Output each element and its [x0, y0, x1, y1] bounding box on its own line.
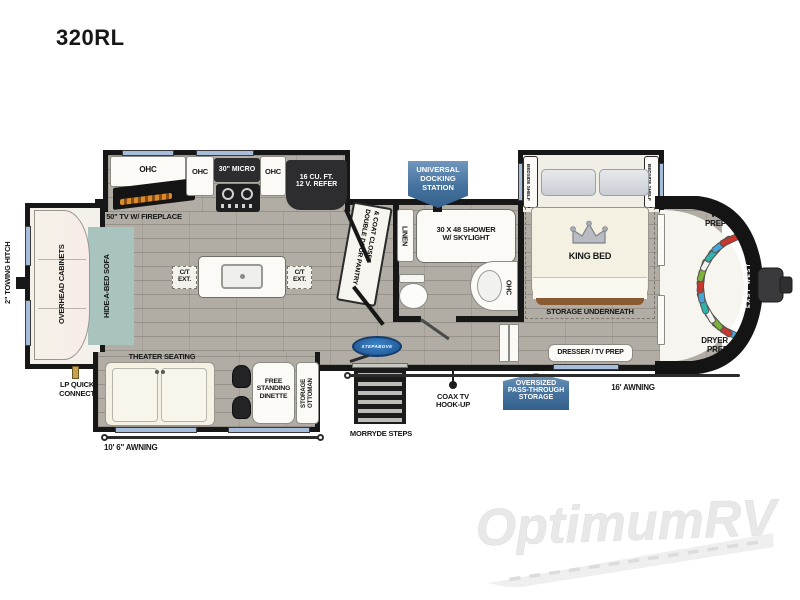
- theater-seat-left: [112, 368, 158, 422]
- crown-icon: [568, 220, 610, 248]
- island-faucet: [240, 274, 245, 279]
- bath-ohc-label: OHC: [504, 274, 512, 300]
- dinette-chair-1: [232, 365, 251, 388]
- dinette-line3: DINETTE: [252, 393, 295, 400]
- awning-left-cap-r: [317, 434, 324, 441]
- bed-foot-blanket: [533, 277, 647, 299]
- awning-right-bar: [348, 374, 740, 377]
- cupholder-1: [155, 370, 159, 374]
- ct-ext-left-label: C/T EXT.: [172, 269, 197, 283]
- pillow-left: [541, 169, 596, 196]
- passthrough-line-1: OVERSIZED: [503, 380, 569, 387]
- dinette-label: FREE STANDING DINETTE: [252, 378, 295, 400]
- dinette-line1: FREE: [252, 378, 295, 385]
- burner-2: [241, 188, 253, 200]
- storage-underneath-label: STORAGE UNDERNEATH: [523, 308, 657, 316]
- ottoman-line2: OTTOMAN: [308, 366, 315, 420]
- shower-label-2: W/ SKYLIGHT: [416, 234, 516, 242]
- microwave: 30" MICRO: [214, 158, 260, 182]
- shower-label: 30 X 48 SHOWER W/ SKYLIGHT: [416, 226, 516, 243]
- bedroom-window: [553, 364, 619, 370]
- lp-quick-connect-valve: [72, 366, 79, 379]
- overhead-cabinets-label: OVERHEAD CABINETS: [58, 230, 66, 338]
- bedroom-left-wall: [518, 205, 524, 322]
- awning-right-cap-l: [344, 372, 351, 379]
- refrigerator: 16 CU. FT. 12 V. REFER: [286, 160, 347, 210]
- bedroom-step-1: [499, 324, 509, 362]
- bedside-shelf-left-label: BEDSIDE SHELF: [526, 158, 531, 206]
- tv-fireplace-label: 50" TV W/ FIREPLACE: [94, 213, 194, 221]
- ct-right-line2: EXT.: [287, 276, 312, 283]
- refrigerator-label-1: 16 CU. FT.: [286, 174, 347, 181]
- coax-dot: [449, 381, 457, 389]
- refrigerator-label-2: 12 V. REFER: [286, 181, 347, 188]
- rv-floorplan-screenshot: 320RL 2" TOWING HITCH OVERHEAD CABINETS …: [0, 0, 800, 600]
- stepabove-logo: STEPABOVE: [352, 336, 402, 357]
- awning-left-bar: [105, 436, 320, 439]
- passthrough-line-2: PASS-THROUGH: [503, 387, 569, 394]
- bathroom-bottom-wall-2: [456, 316, 523, 322]
- stepabove-logo-text: STEPABOVE: [361, 344, 392, 349]
- wall-bottom-1: [316, 365, 354, 371]
- theater-seating-label: THEATER SEATING: [112, 353, 212, 361]
- docking-line-1: UNIVERSAL: [408, 165, 468, 174]
- king-bed-label: KING BED: [549, 252, 631, 262]
- bed-base-wood: [536, 298, 644, 305]
- towing-hitch-label: 2" TOWING HITCH: [4, 228, 12, 318]
- dresser-tv-prep-label: DRESSER / TV PREP: [548, 349, 633, 357]
- ct-right-line1: C/T: [287, 269, 312, 276]
- morryde-steps-label: MORRYDE STEPS: [342, 430, 420, 438]
- passthrough-line-3: STORAGE: [503, 394, 569, 401]
- rear-window-1: [25, 226, 31, 266]
- brand-logo: EAST WEST: [746, 252, 752, 318]
- ohc-label-1: OHC: [126, 166, 170, 175]
- theater-window-2: [228, 427, 310, 433]
- front-cap: [640, 185, 800, 385]
- cupholder-2: [161, 370, 165, 374]
- hide-a-bed-sofa-label: HIDE-A-BED SOFA: [103, 238, 111, 334]
- storage-ottoman-label: STORAGE OTTOMAN: [297, 366, 319, 420]
- awning-left-cap-l: [101, 434, 108, 441]
- ohc-label-2: OHC: [186, 168, 214, 176]
- ct-ext-right-label: C/T EXT.: [287, 269, 312, 283]
- cooktop-grate: [221, 204, 255, 208]
- optimumrv-watermark: OptimumRV: [468, 482, 798, 587]
- theater-window-1: [115, 427, 197, 433]
- awning-left-label: 10' 6" AWNING: [104, 444, 194, 453]
- rear-window-2: [25, 300, 31, 346]
- docking-line-2: DOCKING: [408, 174, 468, 183]
- theater-seat-right: [161, 368, 207, 422]
- coax-label: COAX TV HOOK-UP: [424, 393, 482, 410]
- linen-label: LINEN: [400, 216, 408, 256]
- docking-line-3: STATION: [408, 183, 468, 192]
- toilet-bowl: [399, 283, 428, 309]
- awning-right-label: 16' AWNING: [600, 384, 666, 393]
- bathroom-bottom-wall-1: [393, 316, 421, 322]
- dinette-chair-2: [232, 396, 251, 419]
- bedroom-step-2: [509, 324, 519, 362]
- toilet-tank: [399, 274, 425, 283]
- ohc-label-3: OHC: [260, 168, 286, 176]
- bath-sink: [477, 270, 502, 302]
- passthrough-storage-badge: OVERSIZED PASS-THROUGH STORAGE: [503, 373, 569, 410]
- ct-left-line1: C/T: [172, 269, 197, 276]
- microwave-label: 30" MICRO: [219, 166, 255, 173]
- burner-1: [222, 188, 234, 200]
- coax-line2: HOOK-UP: [424, 401, 482, 409]
- dinette-line2: STANDING: [252, 385, 295, 392]
- ct-left-line2: EXT.: [172, 276, 197, 283]
